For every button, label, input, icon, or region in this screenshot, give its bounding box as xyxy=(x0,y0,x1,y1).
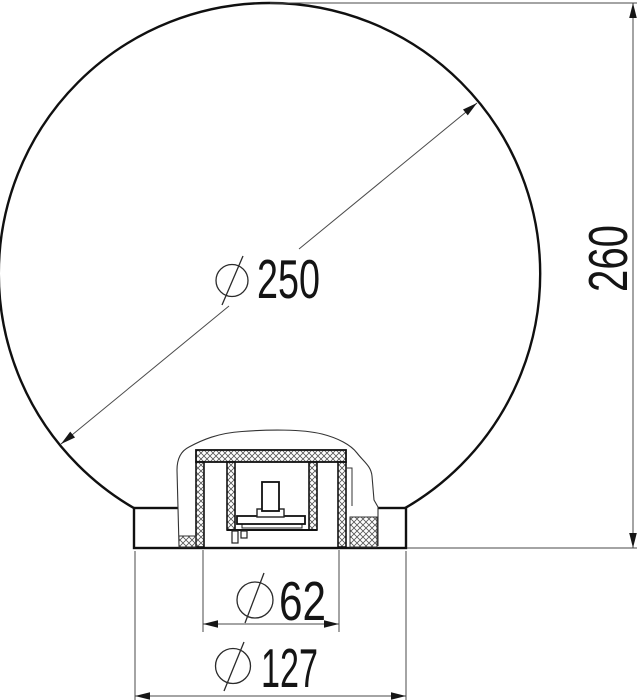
latch-clip xyxy=(232,531,238,543)
contact-pin xyxy=(262,482,279,511)
gasket-foot-left xyxy=(179,536,196,547)
overall-height-value: 260 xyxy=(577,225,637,292)
technical-drawing-canvas: 250 260 xyxy=(0,0,637,700)
lamp-globe-section-drawing: 250 260 xyxy=(0,0,637,700)
collar-outer-wall-right xyxy=(338,462,346,547)
neck-diameter-value: 62 xyxy=(279,570,326,632)
base-diameter-value: 127 xyxy=(261,637,318,699)
collar-top-rim xyxy=(196,450,346,462)
collar-outer-wall-left xyxy=(196,462,204,547)
sphere-diameter-value: 250 xyxy=(257,248,320,310)
latch-clip xyxy=(241,531,247,538)
collar-inner-wall-left xyxy=(227,462,235,530)
gasket-foot-right xyxy=(350,517,377,547)
collar-inner-wall-right xyxy=(309,462,317,530)
